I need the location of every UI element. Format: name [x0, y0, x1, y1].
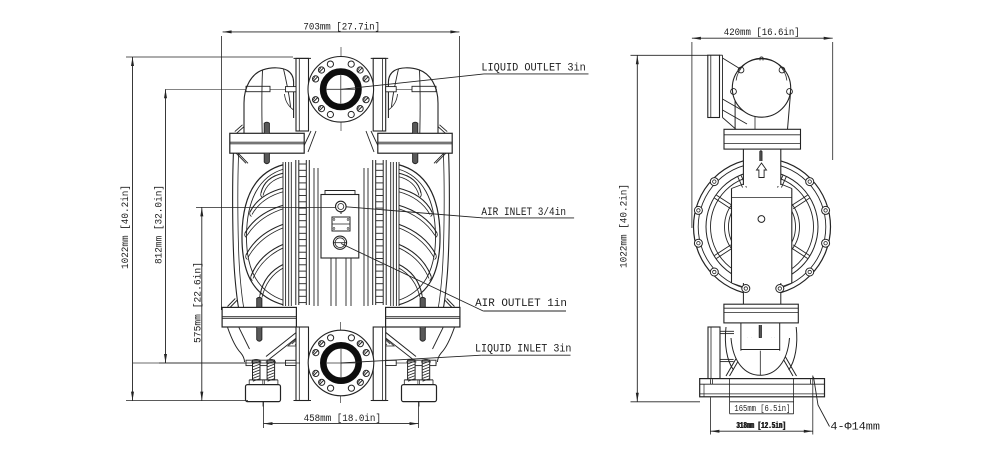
svg-text:318mm [12.5in]: 318mm [12.5in]: [737, 421, 787, 431]
svg-text:575mm [22.6in]: 575mm [22.6in]: [193, 262, 205, 343]
svg-text:LIQUID OUTLET 3in: LIQUID OUTLET 3in: [481, 63, 585, 75]
svg-text:812mm [32.0in]: 812mm [32.0in]: [154, 185, 166, 264]
svg-text:AIR OUTLET 1in: AIR OUTLET 1in: [475, 298, 567, 310]
svg-text:AIR INLET 3/4in: AIR INLET 3/4in: [481, 207, 566, 219]
svg-text:4-Φ14mm: 4-Φ14mm: [830, 421, 880, 433]
svg-text:420mm [16.6in]: 420mm [16.6in]: [724, 27, 800, 39]
svg-text:LIQUID INLET 3in: LIQUID INLET 3in: [475, 344, 571, 356]
svg-text:1022mm [40.2in]: 1022mm [40.2in]: [619, 184, 631, 268]
svg-text:1022mm [40.2in]: 1022mm [40.2in]: [120, 185, 132, 269]
svg-text:165mm [6.5in]: 165mm [6.5in]: [734, 404, 790, 414]
svg-text:458mm [18.0in]: 458mm [18.0in]: [304, 413, 381, 425]
